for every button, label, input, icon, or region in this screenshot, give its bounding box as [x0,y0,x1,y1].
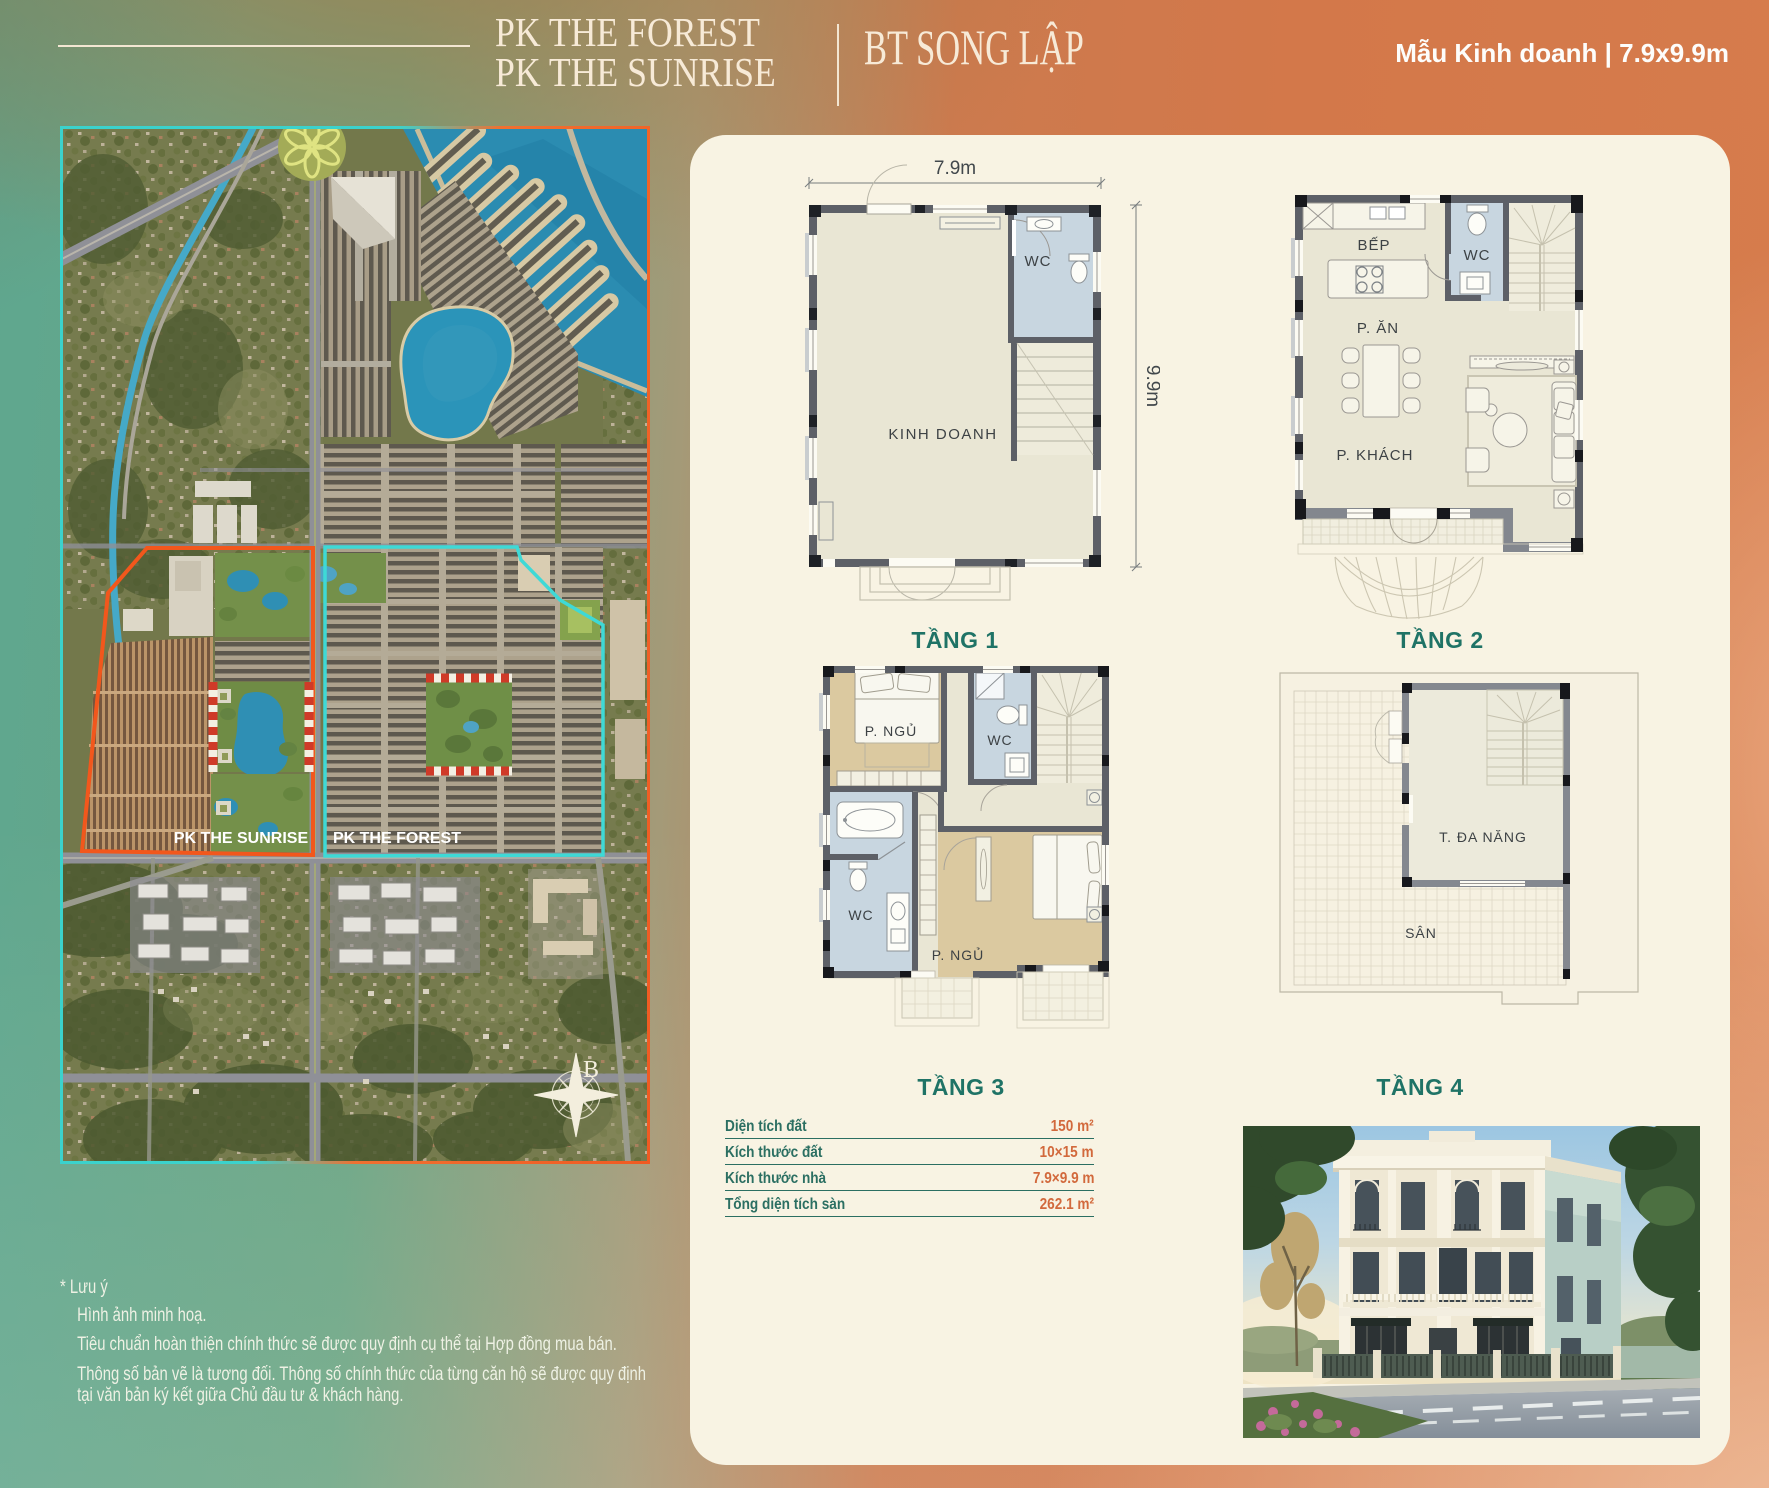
svg-text:P. KHÁCH: P. KHÁCH [1337,447,1414,464]
svg-text:BẾP: BẾP [1357,237,1390,254]
svg-text:WC: WC [1464,247,1491,264]
svg-text:P. NGỦ: P. NGỦ [865,722,917,739]
svg-text:TẦNG 3: TẦNG 3 [917,1073,1004,1100]
svg-text:P. ĂN: P. ĂN [1357,320,1399,337]
svg-text:TẦNG 1: TẦNG 1 [911,626,998,653]
svg-text:SÂN: SÂN [1405,925,1437,941]
svg-text:WC: WC [1025,253,1052,270]
svg-text:T. ĐA NĂNG: T. ĐA NĂNG [1439,829,1527,845]
svg-text:PK THE FOREST: PK THE FOREST [333,830,461,847]
svg-text:7.9m: 7.9m [934,160,976,179]
svg-text:TẦNG 4: TẦNG 4 [1376,1073,1463,1100]
svg-text:KINH DOANH: KINH DOANH [888,426,997,443]
svg-text:9.9m: 9.9m [1142,365,1160,407]
svg-text:PK THE SUNRISE: PK THE SUNRISE [174,830,309,847]
svg-text:WC: WC [987,732,1012,748]
svg-text:TẦNG 2: TẦNG 2 [1396,626,1483,653]
svg-text:WC: WC [848,907,873,923]
svg-text:P. NGỦ: P. NGỦ [932,946,984,963]
svg-text:B: B [583,1057,599,1083]
